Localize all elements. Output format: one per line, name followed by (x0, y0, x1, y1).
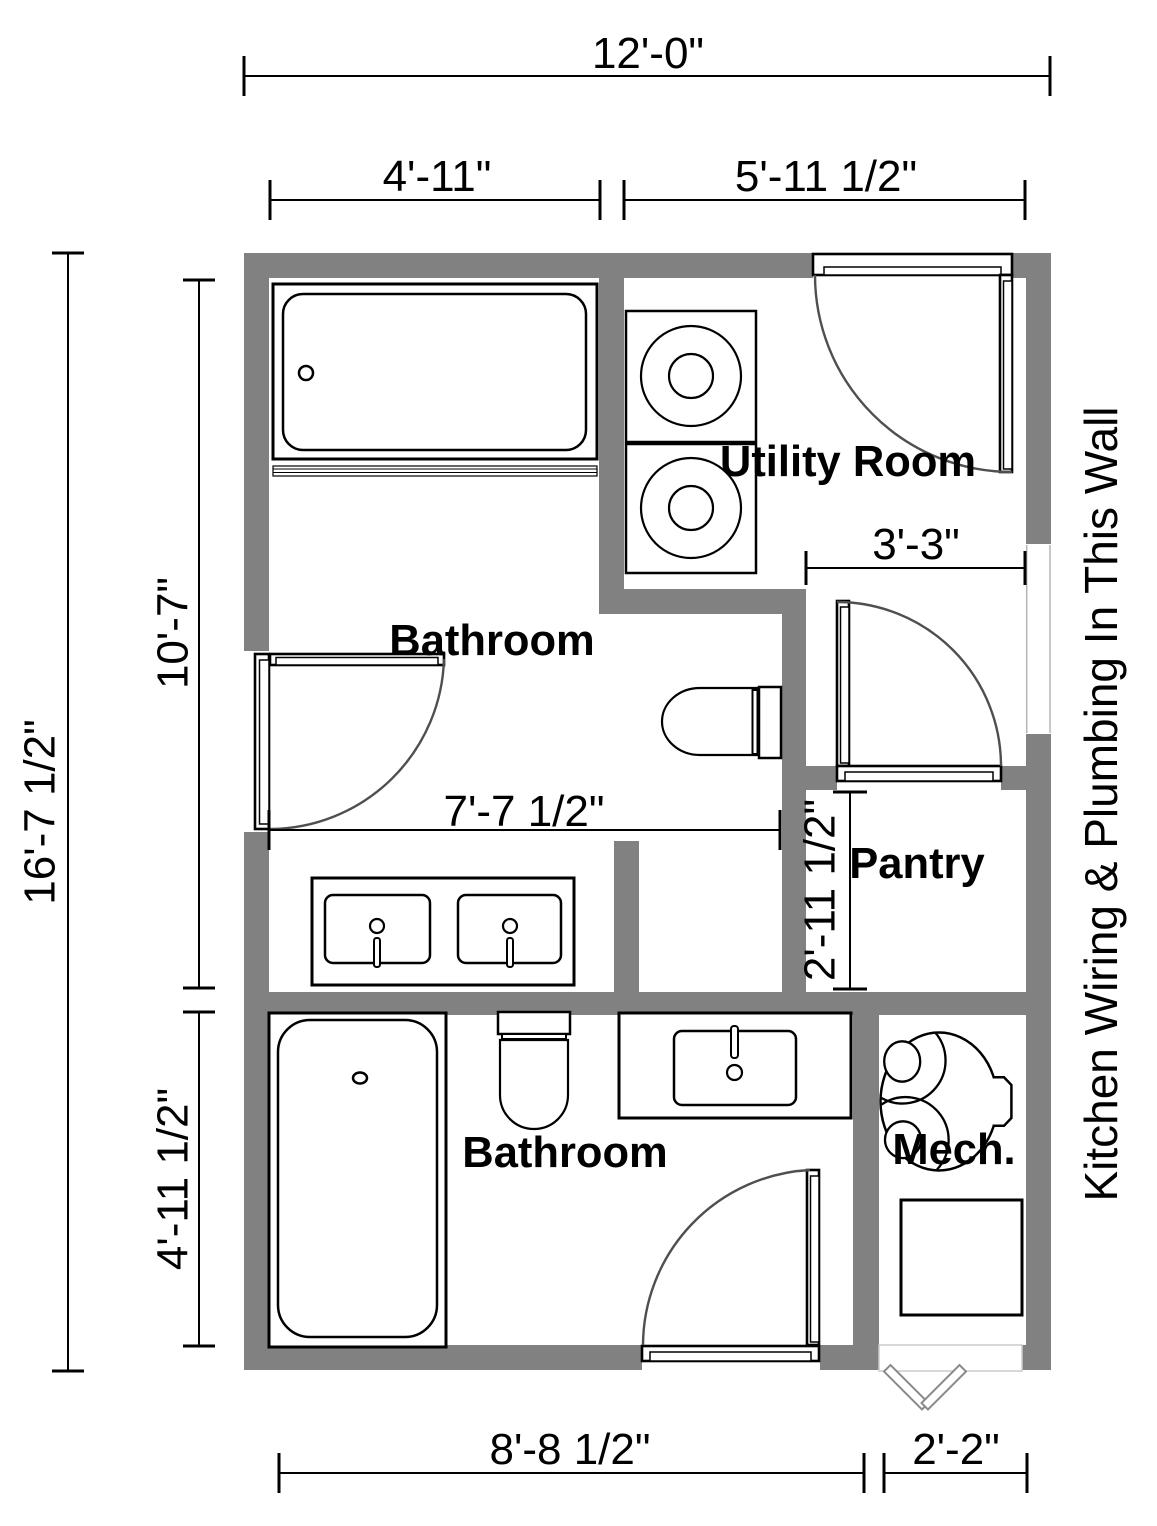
svg-text:Bathroom: Bathroom (462, 1129, 667, 1177)
svg-text:4'-11 1/2": 4'-11 1/2" (149, 1088, 198, 1270)
svg-text:Mech.: Mech. (892, 1126, 1015, 1174)
svg-text:7'-7 1/2": 7'-7 1/2" (443, 787, 604, 836)
svg-text:5'-11 1/2": 5'-11 1/2" (735, 152, 917, 201)
svg-text:4'-11": 4'-11" (383, 152, 492, 201)
svg-text:12'-0": 12'-0" (592, 29, 704, 78)
svg-text:Kitchen Wiring & Plumbing In T: Kitchen Wiring & Plumbing In This Wall (1075, 406, 1127, 1201)
svg-text:16'-7 1/2": 16'-7 1/2" (16, 719, 65, 904)
svg-text:Bathroom: Bathroom (389, 617, 594, 665)
svg-text:2'-11 1/2": 2'-11 1/2" (796, 799, 845, 981)
svg-text:Pantry: Pantry (849, 840, 984, 888)
svg-text:2'-2": 2'-2" (912, 1425, 1000, 1474)
svg-text:Utility Room: Utility Room (720, 438, 976, 486)
svg-text:3'-3": 3'-3" (872, 520, 960, 569)
svg-text:10'-7": 10'-7" (149, 577, 198, 689)
svg-text:8'-8 1/2": 8'-8 1/2" (489, 1425, 650, 1474)
